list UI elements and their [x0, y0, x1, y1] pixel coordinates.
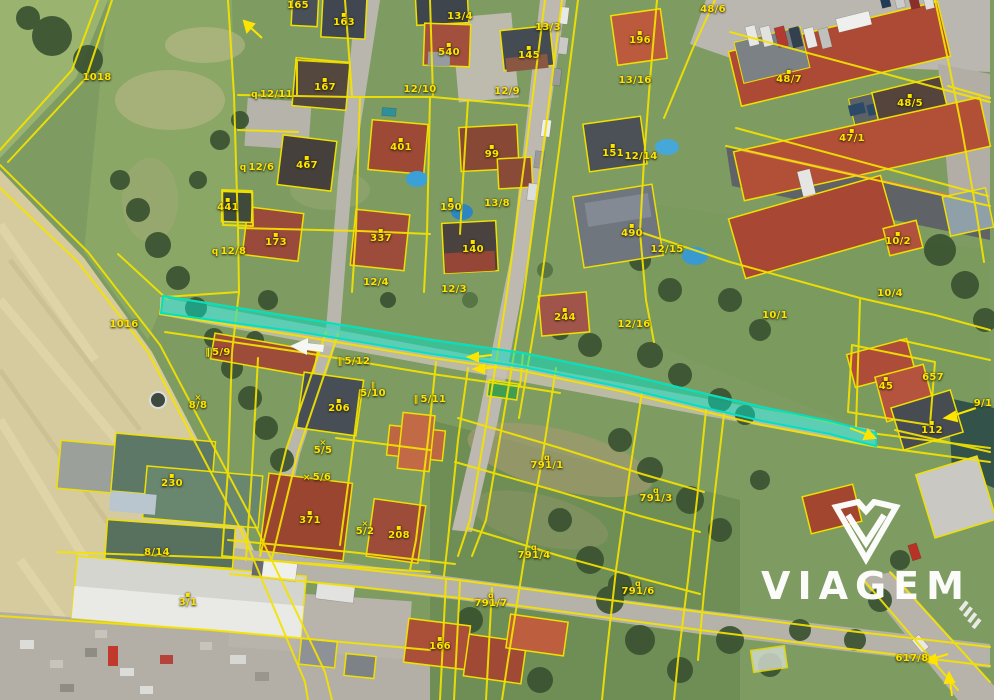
map-viewport[interactable]: 10181016165▪16313/413/3▪540▪145▪19648/6▪…: [0, 0, 994, 700]
aerial-basemap[interactable]: [0, 0, 994, 700]
